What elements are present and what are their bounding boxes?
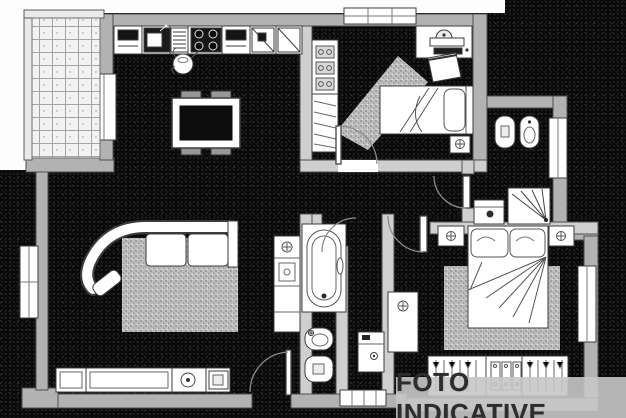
- master-door-leaf: [420, 216, 427, 252]
- kitchen: [114, 25, 302, 155]
- bedroom-door-leaf: [336, 126, 341, 164]
- floor-plan-screenshot: FOTO INDICATIVE: [0, 0, 626, 418]
- balcony-railing-left: [24, 10, 32, 160]
- pillow: [510, 229, 545, 257]
- bathroom1-door-leaf: [463, 176, 470, 208]
- entrance-door-arc: [250, 352, 288, 392]
- balcony-railing-top: [24, 10, 104, 18]
- washing-machine: [358, 332, 384, 372]
- bathroom1-door-arc: [434, 176, 466, 208]
- balcony-tiles: [32, 18, 100, 158]
- pillow: [471, 229, 508, 257]
- watermark-banner: FOTO INDICATIVE: [396, 377, 626, 418]
- pillow: [444, 89, 465, 131]
- sideboard: [56, 368, 230, 392]
- entrance-door-leaf: [286, 350, 291, 395]
- living-room: [56, 221, 238, 392]
- entrance-threshold: [340, 390, 386, 406]
- floor-plan-drawing: [0, 0, 626, 418]
- balcony: [24, 10, 104, 160]
- watermark-text: FOTO INDICATIVE: [396, 367, 626, 418]
